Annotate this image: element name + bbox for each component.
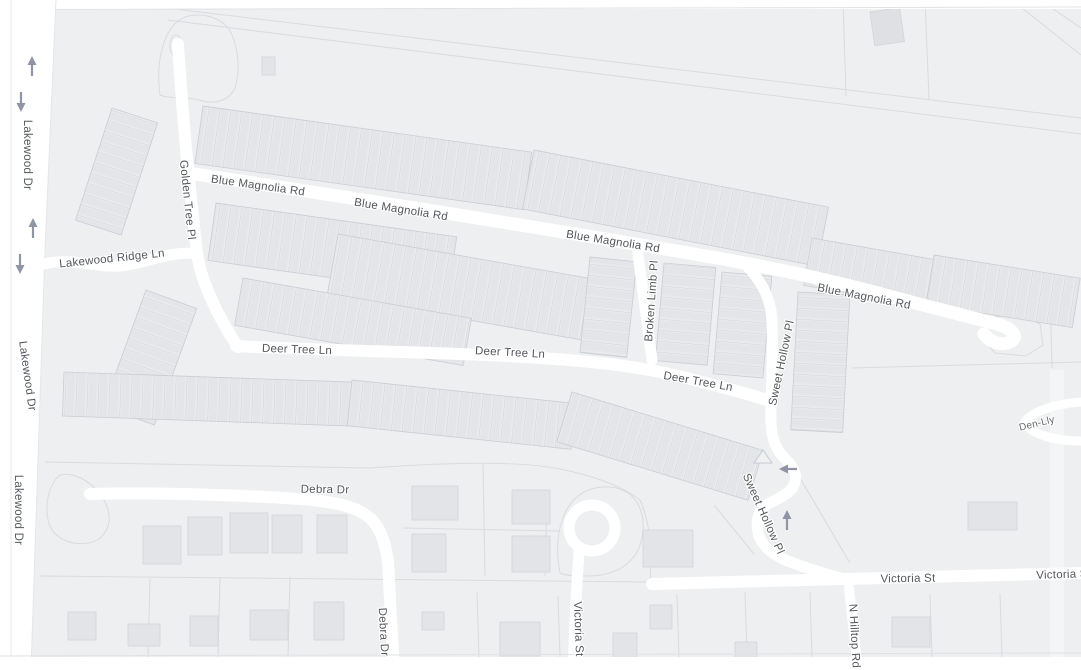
road-label-victoria-st: Victoria St bbox=[571, 601, 585, 656]
rowhouse-strip bbox=[347, 380, 576, 449]
building bbox=[412, 534, 446, 572]
lot-line bbox=[477, 592, 479, 657]
block-boundary bbox=[852, 362, 1081, 368]
block-boundary bbox=[40, 576, 648, 582]
building bbox=[512, 536, 550, 572]
map-canvas[interactable]: Lakewood Dr Lakewood Dr Lakewood Dr Gold… bbox=[0, 0, 1081, 670]
lot-line bbox=[558, 596, 560, 657]
building bbox=[412, 486, 458, 520]
building bbox=[190, 616, 218, 646]
rowhouse-strip bbox=[557, 392, 763, 500]
utility-corridor-line bbox=[168, 20, 1081, 134]
building bbox=[230, 513, 268, 553]
building bbox=[870, 8, 904, 46]
road-label-debra-dr: Debra Dr bbox=[301, 484, 350, 497]
building bbox=[650, 605, 672, 629]
rowhouse-strip bbox=[655, 263, 715, 365]
one-way-up-arrow bbox=[783, 510, 792, 530]
building bbox=[500, 622, 540, 656]
driveway-band bbox=[1050, 370, 1064, 657]
road-bottom-edge bbox=[0, 657, 1081, 670]
cul-de-sac-island-outline bbox=[47, 474, 109, 543]
building bbox=[143, 526, 181, 564]
rowhouse-strip bbox=[76, 108, 158, 235]
buildings-layer bbox=[68, 8, 1017, 665]
lot-line bbox=[797, 473, 850, 563]
rowhouse-strip bbox=[580, 257, 637, 357]
road-victoria-st-loop bbox=[569, 505, 615, 551]
lot-line bbox=[677, 594, 679, 657]
building bbox=[512, 490, 550, 524]
road-label-debra-dr: Debra Dr bbox=[376, 607, 391, 656]
rowhouse-strip bbox=[62, 372, 355, 426]
building bbox=[643, 530, 693, 567]
lot-line bbox=[714, 505, 754, 554]
lot-line bbox=[483, 464, 485, 576]
road-victoria-st bbox=[652, 573, 1081, 584]
lot-line bbox=[925, 0, 929, 99]
building bbox=[314, 602, 344, 640]
building bbox=[272, 515, 302, 553]
parcel-outline bbox=[159, 15, 238, 102]
road-label-victoria-st-clipped: Victoria S bbox=[1036, 568, 1081, 582]
building bbox=[262, 57, 275, 75]
utility-corridor-line bbox=[150, 6, 1081, 118]
building bbox=[188, 517, 222, 555]
building bbox=[250, 610, 288, 640]
building bbox=[422, 612, 444, 630]
building bbox=[68, 612, 96, 640]
building bbox=[128, 624, 160, 646]
rowhouse-strip bbox=[791, 292, 850, 433]
building bbox=[317, 515, 347, 553]
lot-line bbox=[810, 592, 812, 657]
building bbox=[968, 502, 1017, 530]
lot-line bbox=[403, 528, 560, 531]
road-lakewood-dr bbox=[0, 0, 56, 670]
road-label-deer-tree-ln: Deer Tree Ln bbox=[262, 343, 333, 357]
road-label-lakewood-dr: Lakewood Dr bbox=[12, 475, 24, 546]
lot-line bbox=[1000, 594, 1002, 657]
road-edge-line bbox=[0, 653, 1081, 656]
building bbox=[892, 617, 930, 647]
road-label-victoria-st: Victoria St bbox=[880, 573, 935, 586]
lot-line bbox=[843, 0, 846, 96]
road-label-lakewood-dr: Lakewood Dr bbox=[21, 120, 33, 191]
